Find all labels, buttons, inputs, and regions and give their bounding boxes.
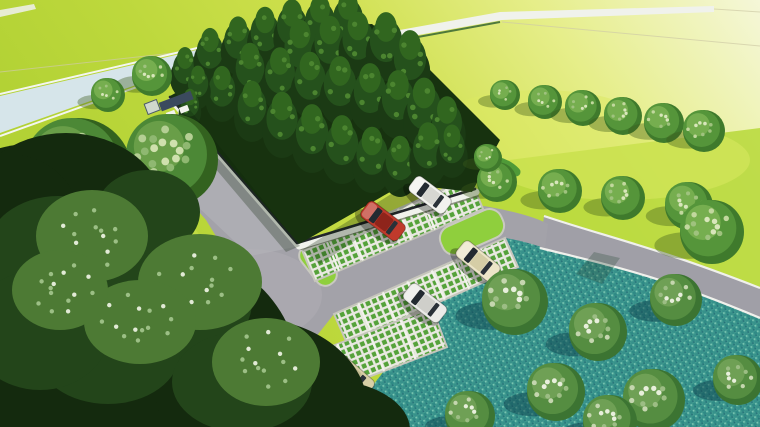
tree-speckle (670, 281, 674, 285)
evergreen-speckle (392, 28, 397, 33)
evergreen-speckle (329, 142, 334, 147)
foreground-speckle (266, 330, 270, 334)
evergreen-speckle (270, 109, 275, 114)
tree-speckle (736, 365, 740, 369)
tree-speckle (542, 384, 547, 389)
evergreen-top (191, 66, 205, 85)
evergreen-speckle (386, 88, 391, 93)
tree-speckle (724, 216, 729, 221)
tree-speckle (664, 296, 668, 300)
foreground-speckle (136, 338, 140, 342)
tree-speckle (496, 170, 499, 173)
tree-speckle (537, 99, 540, 102)
tree-speckle (138, 135, 146, 143)
evergreen-speckle (228, 32, 233, 37)
tree-speckle (741, 384, 745, 388)
tree-speckle (727, 376, 731, 380)
tree-speckle (679, 203, 683, 207)
evergreen-speckle (194, 106, 197, 109)
rendering-canvas (0, 0, 760, 427)
foreground-speckle (72, 263, 76, 267)
foreground-speckle (107, 303, 111, 307)
tree-speckle (556, 193, 560, 197)
tree-speckle (523, 296, 529, 302)
tree-speckle (610, 184, 614, 188)
tree-speckle (623, 108, 626, 111)
evergreen-speckle (312, 90, 317, 95)
evergreen-speckle (435, 117, 440, 122)
site-rendering (0, 0, 760, 427)
tree-speckle (587, 413, 592, 418)
evergreen-top (177, 47, 193, 69)
foreground-speckle (262, 368, 266, 372)
tree-canopy (654, 278, 683, 307)
tree-speckle (545, 394, 550, 399)
tree-speckle (611, 412, 616, 417)
tree-speckle (595, 404, 600, 409)
tree-speckle (456, 415, 460, 419)
tree-speckle (502, 304, 508, 310)
tree-speckle (660, 386, 665, 391)
evergreen-top (255, 7, 274, 33)
tree-speckle (691, 212, 696, 217)
tree-speckle (183, 142, 191, 150)
foreground-speckle (209, 283, 213, 287)
tree-speckle (576, 331, 581, 336)
foreground-foliage-light (12, 250, 108, 330)
evergreen-speckle (387, 53, 392, 58)
tree-canopy (531, 88, 550, 107)
evergreen-speckle (254, 55, 259, 60)
tree-speckle (139, 70, 142, 73)
tree-speckle (534, 392, 539, 397)
tree-speckle (666, 118, 669, 121)
foreground-speckle (228, 267, 232, 271)
evergreen-top (329, 56, 351, 86)
foreground-speckle (49, 291, 53, 295)
evergreen-speckle (434, 139, 439, 144)
evergreen-speckle (418, 135, 423, 140)
evergreen-speckle (282, 57, 287, 62)
tree-speckle (166, 164, 174, 172)
tree-speckle (498, 89, 501, 92)
evergreen-top (320, 16, 341, 45)
tree-speckle (160, 74, 163, 77)
tree-speckle (520, 280, 526, 286)
tree-speckle (509, 90, 512, 93)
evergreen-speckle (394, 112, 399, 117)
evergreen-speckle (320, 4, 325, 9)
evergreen-speckle (239, 60, 244, 65)
evergreen-speckle (202, 76, 205, 79)
tree-speckle (676, 297, 680, 301)
tree-speckle (548, 398, 553, 403)
evergreen-speckle (343, 156, 348, 161)
foreground-speckle (213, 256, 217, 260)
tree-speckle (715, 224, 720, 229)
tree-speckle (744, 370, 748, 374)
tree-speckle (652, 110, 655, 113)
foreground-speckle (52, 282, 56, 286)
evergreen-speckle (254, 35, 259, 40)
foreground-speckle (133, 327, 137, 331)
tree-speckle (547, 194, 551, 198)
foreground-speckle (157, 272, 161, 276)
foreground-speckle (48, 286, 52, 290)
tree-speckle (506, 179, 509, 182)
tree-speckle (147, 75, 150, 78)
tree-speckle (709, 123, 713, 127)
evergreen-speckle (175, 66, 179, 70)
tree-speckle (622, 102, 625, 105)
foreground-speckle (73, 212, 77, 216)
tree-speckle (629, 398, 634, 403)
tree-speckle (105, 85, 108, 88)
evergreen-top (272, 92, 293, 121)
foreground-speckle (105, 249, 109, 253)
evergreen-speckle (352, 51, 357, 56)
foreground-speckle (140, 328, 144, 332)
foreground-speckle (169, 317, 173, 321)
evergreen-speckle (298, 14, 303, 19)
tree-speckle (546, 105, 549, 108)
evergreen-speckle (259, 106, 264, 111)
tree-speckle (504, 98, 507, 101)
foreground-speckle (244, 334, 248, 338)
tree-speckle (467, 397, 471, 401)
tree-speckle (694, 196, 698, 200)
foreground-speckle (146, 326, 150, 330)
tree-speckle (678, 293, 682, 297)
tree-speckle (617, 415, 622, 420)
evergreen-speckle (258, 97, 263, 102)
foreground-speckle (100, 319, 104, 323)
tree-speckle (172, 155, 180, 163)
tree-speckle (492, 181, 495, 184)
tree-speckle (694, 230, 699, 235)
foreground-speckle (165, 331, 169, 335)
tree-speckle (449, 411, 453, 415)
evergreen-top (348, 12, 369, 41)
evergreen-top (331, 115, 353, 145)
tree-speckle (618, 118, 621, 121)
tree-speckle (505, 86, 508, 89)
tree-speckle (550, 183, 554, 187)
foreground-speckle (101, 234, 105, 238)
tree-speckle (703, 122, 707, 126)
evergreen-top (413, 78, 435, 109)
foreground-speckle (293, 366, 297, 370)
evergreen-speckle (369, 73, 374, 78)
tree-speckle (557, 393, 562, 398)
foreground-speckle (72, 232, 76, 236)
tree-speckle (726, 366, 730, 370)
tree-speckle (677, 198, 681, 202)
foreground-speckle (256, 366, 260, 370)
tree-speckle (687, 295, 691, 299)
evergreen-speckle (194, 100, 197, 103)
foreground-speckle (240, 357, 244, 361)
tree-speckle (498, 186, 501, 189)
tree-speckle (515, 304, 521, 310)
tree-speckle (612, 422, 617, 427)
evergreen-speckle (200, 42, 204, 46)
tree-speckle (98, 87, 101, 90)
tree-speckle (749, 376, 753, 380)
foreground-speckle (266, 384, 270, 388)
foreground-speckle (114, 324, 118, 328)
evergreen-speckle (397, 144, 402, 149)
foreground-speckle (94, 225, 98, 229)
tree-speckle (558, 382, 563, 387)
tree-speckle (623, 189, 627, 193)
evergreen-speckle (243, 93, 248, 98)
foreground-speckle (61, 224, 65, 228)
foreground-speckle (49, 272, 53, 276)
evergreen-speckle (363, 74, 368, 79)
evergreen-speckle (287, 106, 292, 111)
foreground-speckle (61, 270, 65, 274)
evergreen-top (444, 124, 461, 147)
tree-speckle (464, 404, 468, 408)
tree-canopy (94, 81, 113, 100)
tree-speckle (610, 196, 614, 200)
evergreen-speckle (257, 42, 262, 47)
tree-speckle (453, 401, 457, 405)
tree-speckle (517, 297, 523, 303)
tree-speckle (470, 405, 474, 409)
tree-speckle (609, 190, 613, 194)
tree-speckle (585, 95, 588, 98)
evergreen-speckle (204, 37, 208, 41)
tree-speckle (711, 229, 716, 234)
tree-speckle (691, 221, 696, 226)
evergreen-speckle (393, 171, 398, 176)
foreground-speckle (39, 279, 43, 283)
evergreen-speckle (369, 136, 374, 141)
tree-speckle (732, 379, 736, 383)
tree-speckle (617, 200, 621, 204)
tree-speckle (592, 314, 597, 319)
foreground-speckle (72, 293, 76, 297)
evergreen-speckle (360, 157, 365, 162)
evergreen-speckle (418, 61, 423, 66)
evergreen-speckle (412, 114, 418, 120)
tree-speckle (709, 208, 714, 213)
tree-speckle (488, 156, 490, 158)
tree-speckle (677, 193, 681, 197)
evergreen-speckle (345, 93, 350, 98)
tree-speckle (727, 385, 731, 389)
tree-speckle (693, 134, 697, 138)
tree-speckle (664, 115, 667, 118)
foreground-speckle (243, 369, 247, 373)
evergreen-speckle (297, 79, 302, 84)
foreground-speckle (36, 301, 40, 305)
foreground-foliage-light (212, 318, 320, 406)
tree-speckle (584, 324, 589, 329)
evergreen-speckle (319, 49, 324, 54)
tree-speckle (552, 378, 557, 383)
evergreen-speckle (308, 20, 313, 25)
tree-speckle (625, 193, 629, 197)
tree-speckle (537, 93, 540, 96)
evergreen-speckle (331, 26, 336, 31)
tree-speckle (488, 179, 491, 182)
tree-speckle (708, 129, 712, 133)
tree-speckle (684, 224, 689, 229)
foreground-speckle (122, 334, 126, 338)
tree-speckle (485, 157, 487, 159)
evergreen-speckle (281, 14, 286, 19)
evergreen-speckle (309, 61, 314, 66)
evergreen-speckle (228, 92, 232, 96)
tree-speckle (480, 151, 482, 153)
tree-speckle (150, 144, 158, 152)
tree-speckle (643, 386, 648, 391)
tree-speckle (501, 278, 507, 284)
tree-speckle (161, 126, 169, 134)
tree-speckle (659, 125, 662, 128)
evergreen-top (270, 47, 290, 75)
evergreen-speckle (217, 48, 221, 52)
foreground-speckle (66, 299, 70, 303)
tree-speckle (564, 386, 569, 391)
tree-speckle (726, 372, 730, 376)
tree-speckle (159, 65, 162, 68)
tree-speckle (701, 133, 705, 137)
tree-speckle (661, 395, 666, 400)
evergreen-speckle (374, 29, 379, 34)
evergreen-speckle (418, 52, 423, 57)
foreground-speckle (74, 241, 78, 245)
tree-speckle (101, 93, 104, 96)
tree-speckle (622, 182, 626, 186)
evergreen-speckle (444, 153, 448, 157)
evergreen-speckle (315, 116, 320, 121)
foreground-speckle (253, 361, 257, 365)
tree-speckle (105, 94, 108, 97)
tree-speckle (663, 286, 667, 290)
evergreen-speckle (290, 114, 295, 119)
evergreen-speckle (336, 66, 341, 71)
evergreen-speckle (299, 126, 304, 131)
tree-speckle (490, 301, 496, 307)
tree-speckle (639, 390, 644, 395)
evergreen-speckle (262, 15, 267, 20)
tree-speckle (511, 287, 517, 293)
tree-speckle (605, 335, 610, 340)
tree-speckle (662, 300, 666, 304)
evergreen-speckle (257, 62, 262, 67)
tree-speckle (624, 112, 627, 115)
tree-speckle (555, 181, 559, 185)
tree-speckle (684, 205, 688, 209)
evergreen-speckle (359, 100, 364, 105)
tree-speckle (488, 175, 491, 178)
tree-speckle (158, 139, 166, 147)
tree-canopy (135, 59, 157, 81)
tree-speckle (605, 327, 610, 332)
evergreen-speckle (198, 92, 201, 95)
tree-speckle (493, 296, 499, 302)
tree-speckle (560, 378, 565, 383)
foreground-speckle (105, 262, 109, 266)
tree-speckle (176, 147, 184, 155)
tree-speckle (658, 293, 662, 297)
foreground-speckle (50, 309, 54, 313)
tree-speckle (603, 318, 608, 323)
tree-speckle (651, 386, 656, 391)
tree-speckle (479, 155, 481, 157)
tree-speckle (589, 338, 594, 343)
tree-canopy (476, 146, 491, 161)
tree-speckle (182, 156, 190, 164)
evergreen-speckle (185, 54, 189, 58)
tree-speckle (185, 133, 193, 141)
foreground-speckle (92, 208, 96, 212)
evergreen-speckle (376, 164, 381, 169)
tree-speckle (116, 90, 119, 93)
foreground-speckle (137, 306, 141, 310)
evergreen-speckle (448, 157, 452, 161)
tree-speckle (712, 219, 717, 224)
evergreen-speckle (310, 146, 315, 151)
foreground-speckle (113, 227, 117, 231)
tree-speckle (488, 288, 494, 294)
foreground-speckle (90, 291, 94, 295)
evergreen-speckle (268, 69, 273, 74)
tree-speckle (611, 114, 614, 117)
evergreen-speckle (352, 22, 357, 27)
tree-speckle (584, 105, 587, 108)
foreground-speckle (278, 352, 282, 356)
tree-speckle (564, 190, 568, 194)
evergreen-speckle (401, 42, 406, 47)
evergreen-speckle (458, 144, 462, 148)
evergreen-speckle (449, 107, 454, 112)
evergreen-speckle (381, 54, 386, 59)
tree-speckle (698, 121, 702, 125)
tree-speckle (552, 99, 555, 102)
tree-speckle (566, 184, 570, 188)
tree-speckle (656, 390, 661, 395)
tree-speckle (151, 74, 154, 77)
tree-speckle (491, 149, 493, 151)
tree-speckle (581, 107, 584, 110)
tree-speckle (612, 103, 615, 106)
tree-speckle (586, 329, 591, 334)
evergreen-speckle (304, 32, 309, 37)
foreground-speckle (192, 253, 196, 257)
evergreen-speckle (314, 65, 319, 70)
foreground-speckle (161, 304, 165, 308)
evergreen-speckle (189, 58, 193, 62)
evergreen-speckle (191, 76, 194, 79)
tree-speckle (498, 92, 501, 95)
foreground-speckle (114, 239, 118, 243)
tree-speckle (705, 235, 710, 240)
tree-speckle (717, 231, 722, 236)
tree-speckle (465, 418, 469, 422)
evergreen-speckle (245, 116, 250, 121)
tree-speckle (704, 217, 709, 222)
tree-speckle (472, 410, 476, 414)
tree-speckle (560, 182, 564, 186)
evergreen-speckle (227, 40, 232, 45)
tree-speckle (541, 101, 544, 104)
foreground-speckle (181, 272, 185, 276)
